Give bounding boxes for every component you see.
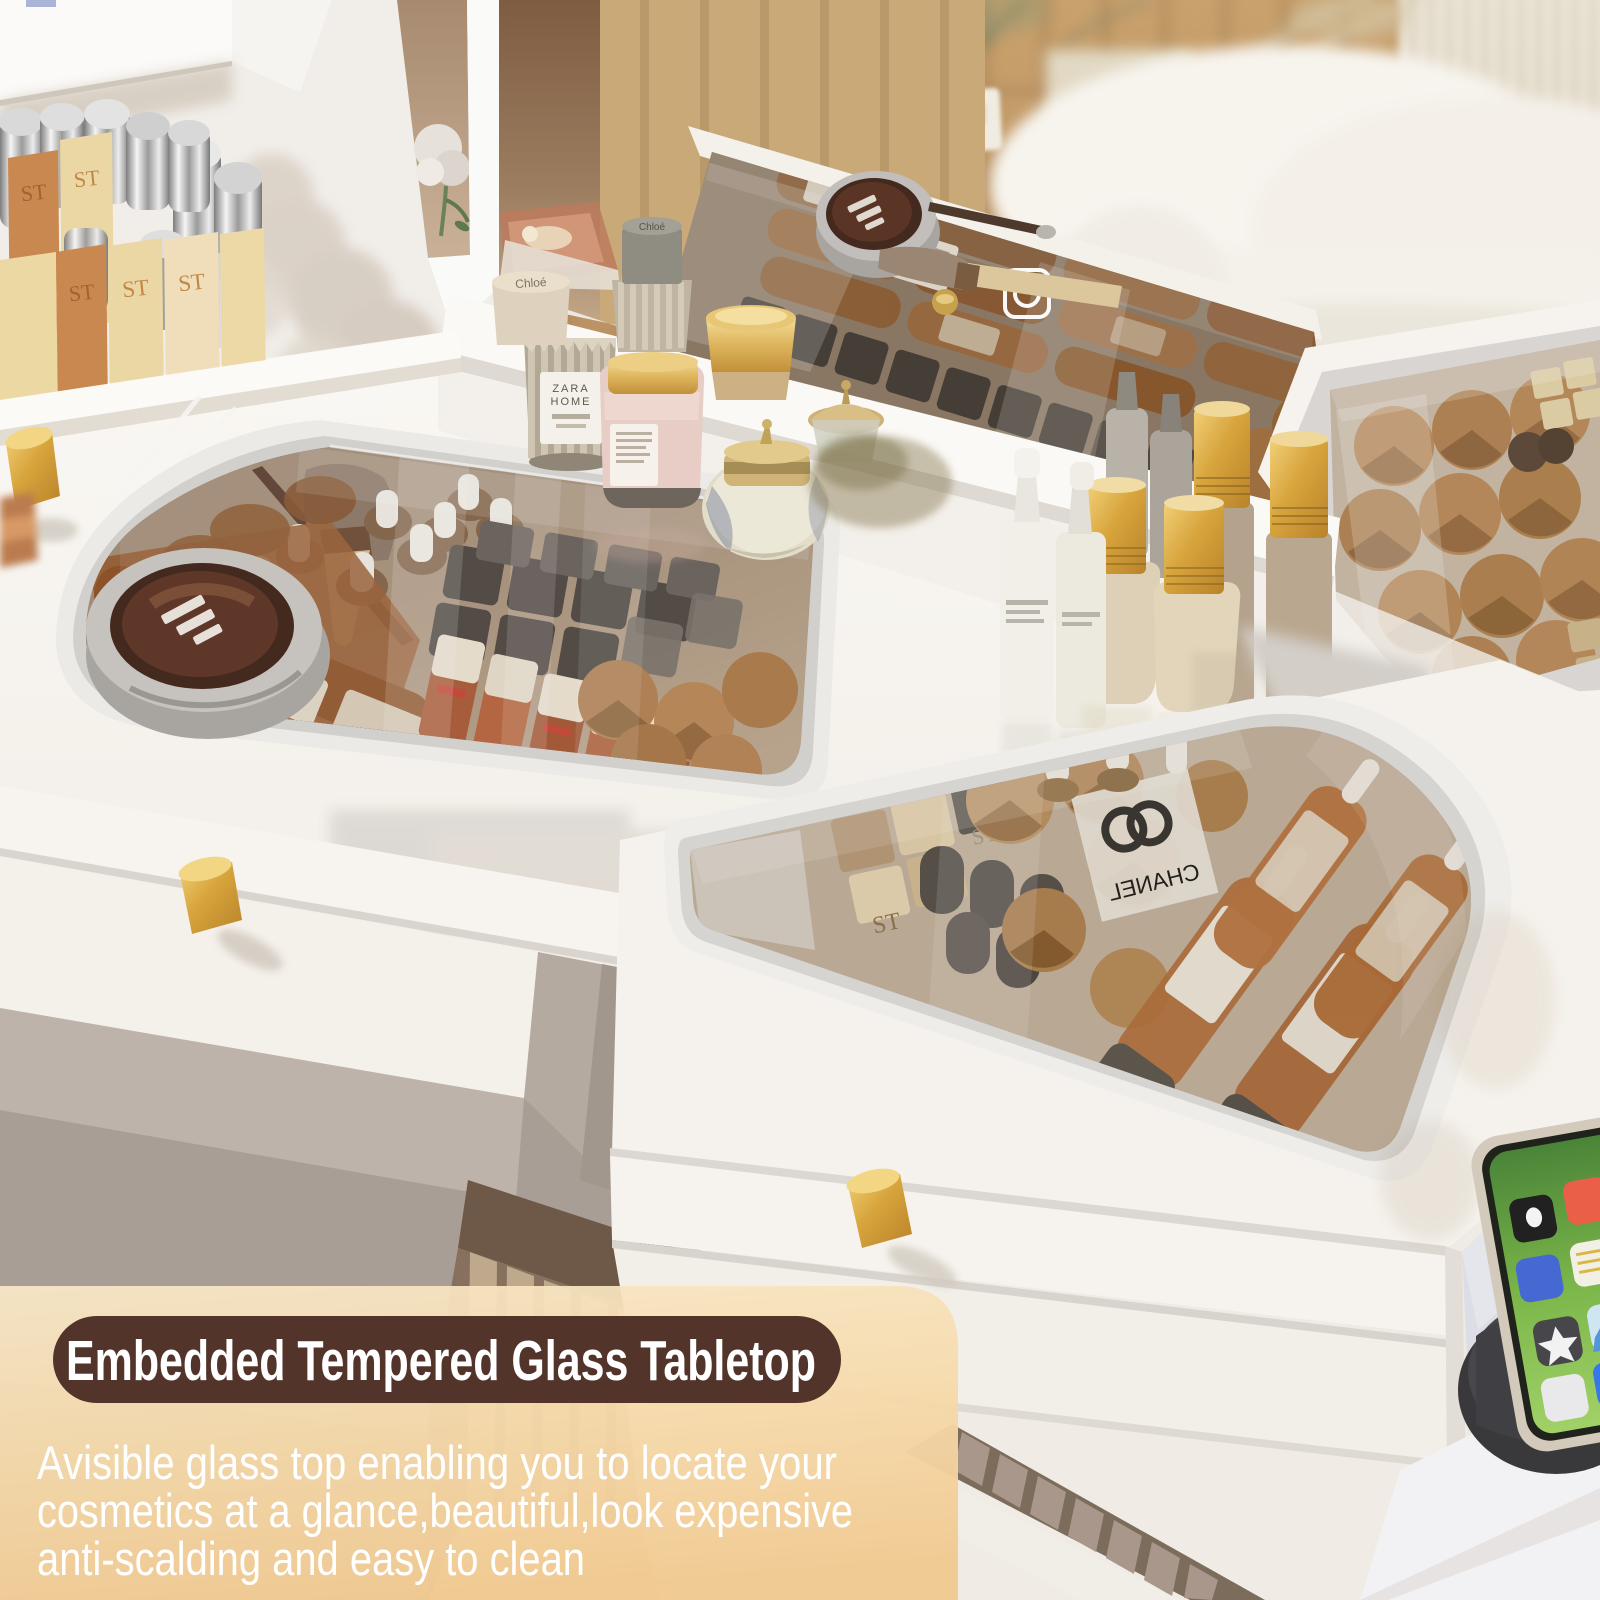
- svg-text:HOME: HOME: [551, 396, 592, 408]
- svg-text:Chloé: Chloé: [515, 275, 548, 291]
- svg-text:anti-scalding and easy to clea: anti-scalding and easy to clean: [37, 1532, 585, 1585]
- svg-text:ST: ST: [73, 165, 102, 193]
- svg-text:Embedded Tempered Glass Tablet: Embedded Tempered Glass Tabletop: [66, 1329, 816, 1393]
- svg-text:Chloé: Chloé: [639, 222, 666, 233]
- svg-text:ST: ST: [20, 179, 49, 207]
- svg-text:cosmetics at a glance,beautifu: cosmetics at a glance,beautiful,look exp…: [37, 1484, 853, 1537]
- svg-text:ST: ST: [121, 275, 150, 303]
- svg-text:ST: ST: [177, 269, 206, 297]
- svg-text:ZARA: ZARA: [552, 383, 589, 395]
- svg-text:ST: ST: [68, 279, 97, 307]
- svg-text:Avisible glass top enabling yo: Avisible glass top enabling you to locat…: [37, 1436, 837, 1489]
